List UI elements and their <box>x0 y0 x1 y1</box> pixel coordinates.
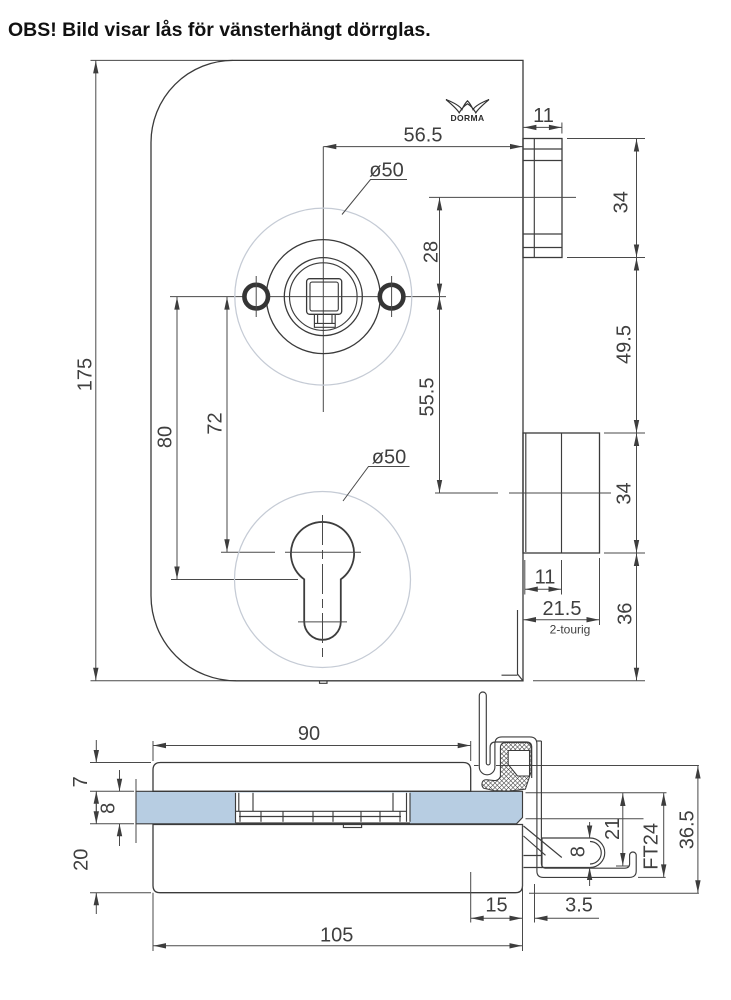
svg-text:36: 36 <box>615 603 637 625</box>
svg-text:DORMA: DORMA <box>450 113 484 123</box>
svg-text:90: 90 <box>298 723 320 745</box>
svg-text:8: 8 <box>567 846 589 857</box>
svg-text:36.5: 36.5 <box>677 810 699 849</box>
svg-text:28: 28 <box>421 241 443 263</box>
svg-text:15: 15 <box>485 895 507 917</box>
svg-text:20: 20 <box>71 849 93 871</box>
svg-text:3.5: 3.5 <box>565 895 593 917</box>
svg-text:ø50: ø50 <box>372 447 406 469</box>
svg-text:FT24: FT24 <box>641 823 663 870</box>
svg-text:7: 7 <box>70 776 92 787</box>
svg-text:2-tourig: 2-tourig <box>550 623 591 637</box>
svg-text:49.5: 49.5 <box>614 325 636 364</box>
svg-text:175: 175 <box>75 358 97 391</box>
svg-text:ø50: ø50 <box>369 160 403 182</box>
svg-text:34: 34 <box>611 191 633 213</box>
svg-text:56.5: 56.5 <box>404 125 443 147</box>
svg-text:34: 34 <box>614 482 636 504</box>
svg-text:72: 72 <box>205 412 227 434</box>
svg-text:55.5: 55.5 <box>417 378 439 417</box>
svg-text:21: 21 <box>602 818 624 840</box>
svg-text:105: 105 <box>320 925 353 947</box>
svg-text:OBS! Bild visar lås för vänste: OBS! Bild visar lås för vänsterhängt dör… <box>8 18 431 41</box>
svg-text:80: 80 <box>155 426 177 448</box>
svg-text:11: 11 <box>535 567 556 589</box>
svg-text:11: 11 <box>533 105 554 127</box>
svg-text:21.5: 21.5 <box>543 598 582 620</box>
svg-text:8: 8 <box>97 803 119 814</box>
